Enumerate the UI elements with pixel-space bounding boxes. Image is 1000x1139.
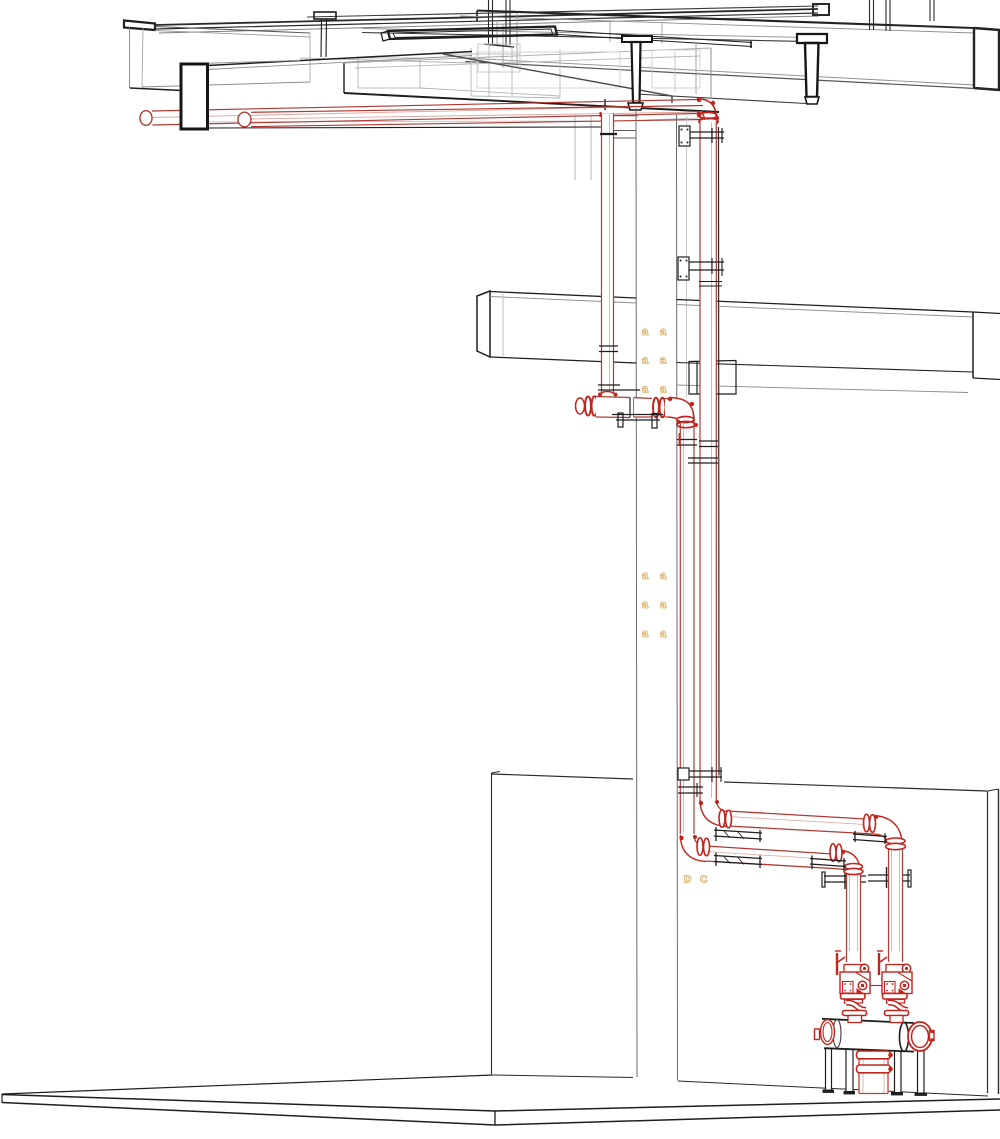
svg-text:D: D — [684, 875, 691, 886]
svg-text:a: a — [642, 326, 649, 338]
svg-text:a: a — [660, 355, 667, 367]
svg-text:a: a — [660, 326, 667, 338]
svg-text:a: a — [642, 599, 649, 611]
svg-text:a: a — [642, 355, 649, 367]
svg-text:C: C — [700, 875, 707, 886]
svg-text:a: a — [642, 628, 649, 640]
svg-text:a: a — [660, 384, 667, 396]
svg-text:a: a — [660, 570, 667, 582]
svg-text:a: a — [642, 570, 649, 582]
svg-text:a: a — [642, 384, 649, 396]
svg-text:a: a — [660, 599, 667, 611]
svg-text:a: a — [660, 628, 667, 640]
